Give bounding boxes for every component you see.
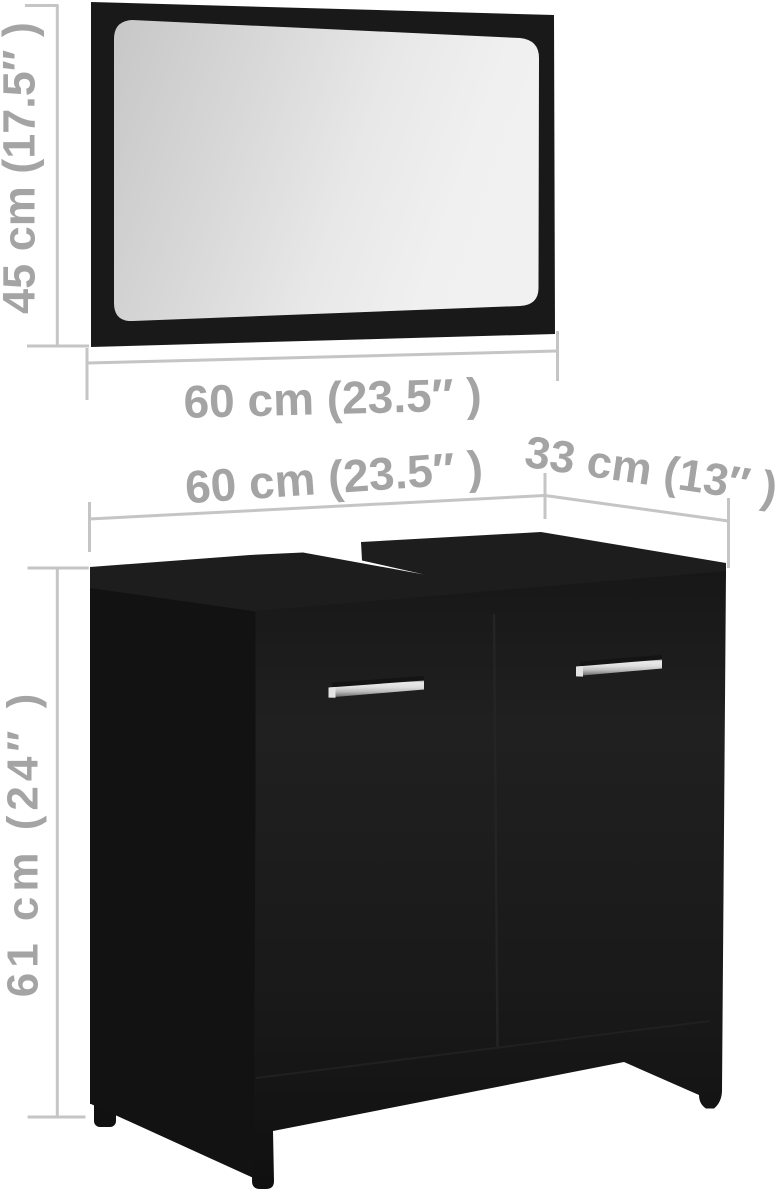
svg-text:45 cm (17.5″ ): 45 cm (17.5″ )	[0, 22, 45, 314]
svg-text:60 cm (23.5″ ): 60 cm (23.5″ )	[183, 441, 484, 514]
svg-text:60 cm (23.5″ ): 60 cm (23.5″ )	[183, 368, 482, 428]
svg-text:33 cm (13″ ): 33 cm (13″ )	[522, 426, 777, 514]
svg-text:61 cm (24″ ): 61 cm (24″ )	[0, 689, 48, 998]
